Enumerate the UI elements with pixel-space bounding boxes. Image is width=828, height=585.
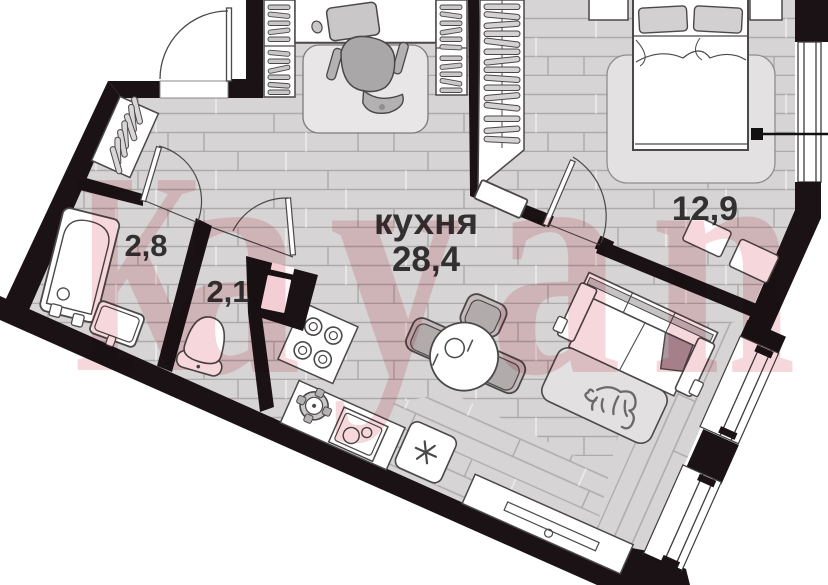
svg-text:ayan: ayan	[170, 78, 825, 444]
